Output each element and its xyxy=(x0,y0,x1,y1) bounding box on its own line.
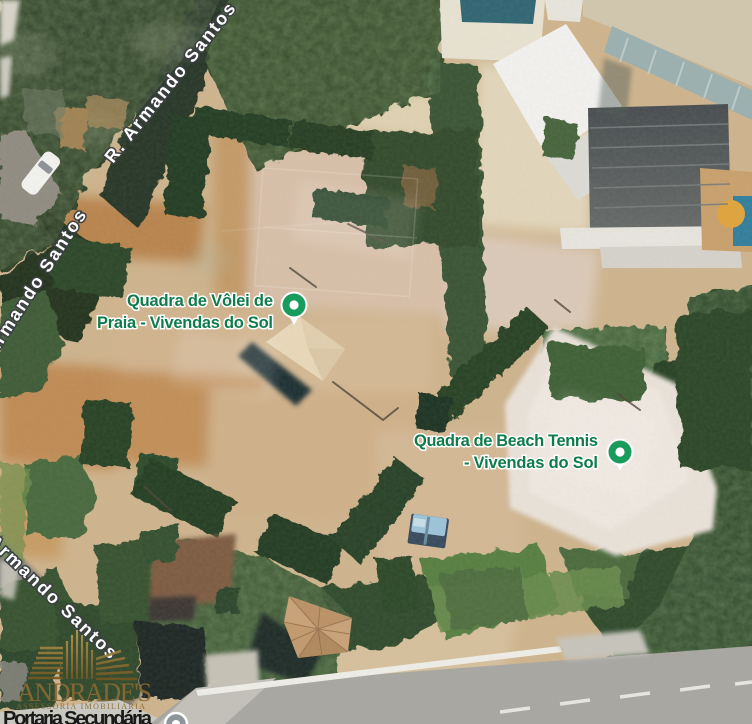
svg-text:- Vivendas do Sol: - Vivendas do Sol xyxy=(464,454,598,472)
svg-text:Quadra de Vôlei de: Quadra de Vôlei de xyxy=(127,292,273,310)
svg-text:Quadra de Beach Tennis: Quadra de Beach Tennis xyxy=(414,432,598,450)
svg-text:Portaria Secundária: Portaria Secundária xyxy=(3,708,153,724)
svg-text:Praia - Vivendas do Sol: Praia - Vivendas do Sol xyxy=(97,314,273,332)
